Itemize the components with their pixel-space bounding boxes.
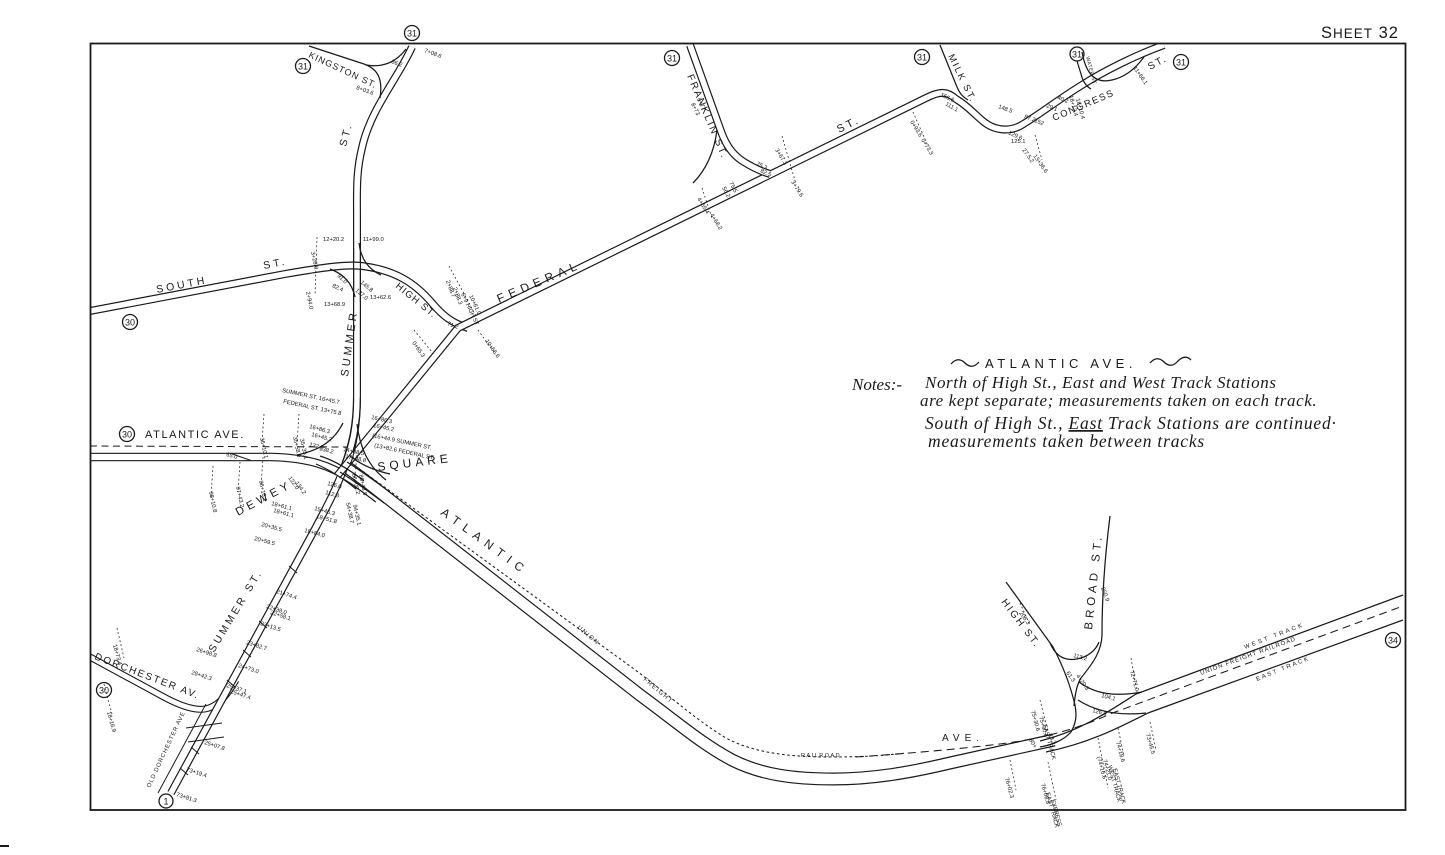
- svg-text:are kept separate; measurement: are kept separate; measurements taken on…: [920, 391, 1317, 410]
- svg-text:measurements taken between tra: measurements taken between tracks: [928, 431, 1205, 451]
- svg-text:31: 31: [1176, 58, 1186, 68]
- svg-text:11+99.0: 11+99.0: [363, 237, 384, 243]
- svg-text:North of High St., East and We: North of High St., East and West Track S…: [924, 373, 1277, 392]
- svg-text:RAILROAD: RAILROAD: [801, 753, 841, 759]
- svg-text:AVE.: AVE.: [942, 733, 984, 744]
- svg-text:34: 34: [1388, 636, 1398, 646]
- svg-text:30: 30: [125, 318, 135, 328]
- svg-text:ATLANTIC AVE.: ATLANTIC AVE.: [985, 356, 1137, 371]
- svg-text:ATLANTIC AVE.: ATLANTIC AVE.: [145, 429, 245, 441]
- svg-text:125.1: 125.1: [1011, 139, 1026, 145]
- svg-text:31: 31: [667, 54, 677, 64]
- svg-text:31: 31: [298, 62, 308, 72]
- svg-text:31: 31: [1072, 50, 1082, 60]
- svg-text:South of High St., East Track: South of High St., East Track Stations a…: [925, 413, 1337, 433]
- svg-text:30: 30: [99, 686, 109, 696]
- svg-text:31: 31: [407, 29, 417, 39]
- svg-text:31: 31: [917, 53, 927, 63]
- svg-text:1: 1: [163, 797, 168, 807]
- svg-text:13+62.6: 13+62.6: [370, 295, 391, 301]
- svg-text:12+20.2: 12+20.2: [323, 237, 344, 243]
- svg-text:SHEET 32: SHEET 32: [1321, 24, 1399, 42]
- svg-text:30: 30: [122, 430, 132, 440]
- svg-text:13+68.9: 13+68.9: [324, 302, 345, 308]
- svg-text:Notes:-: Notes:-: [851, 375, 902, 394]
